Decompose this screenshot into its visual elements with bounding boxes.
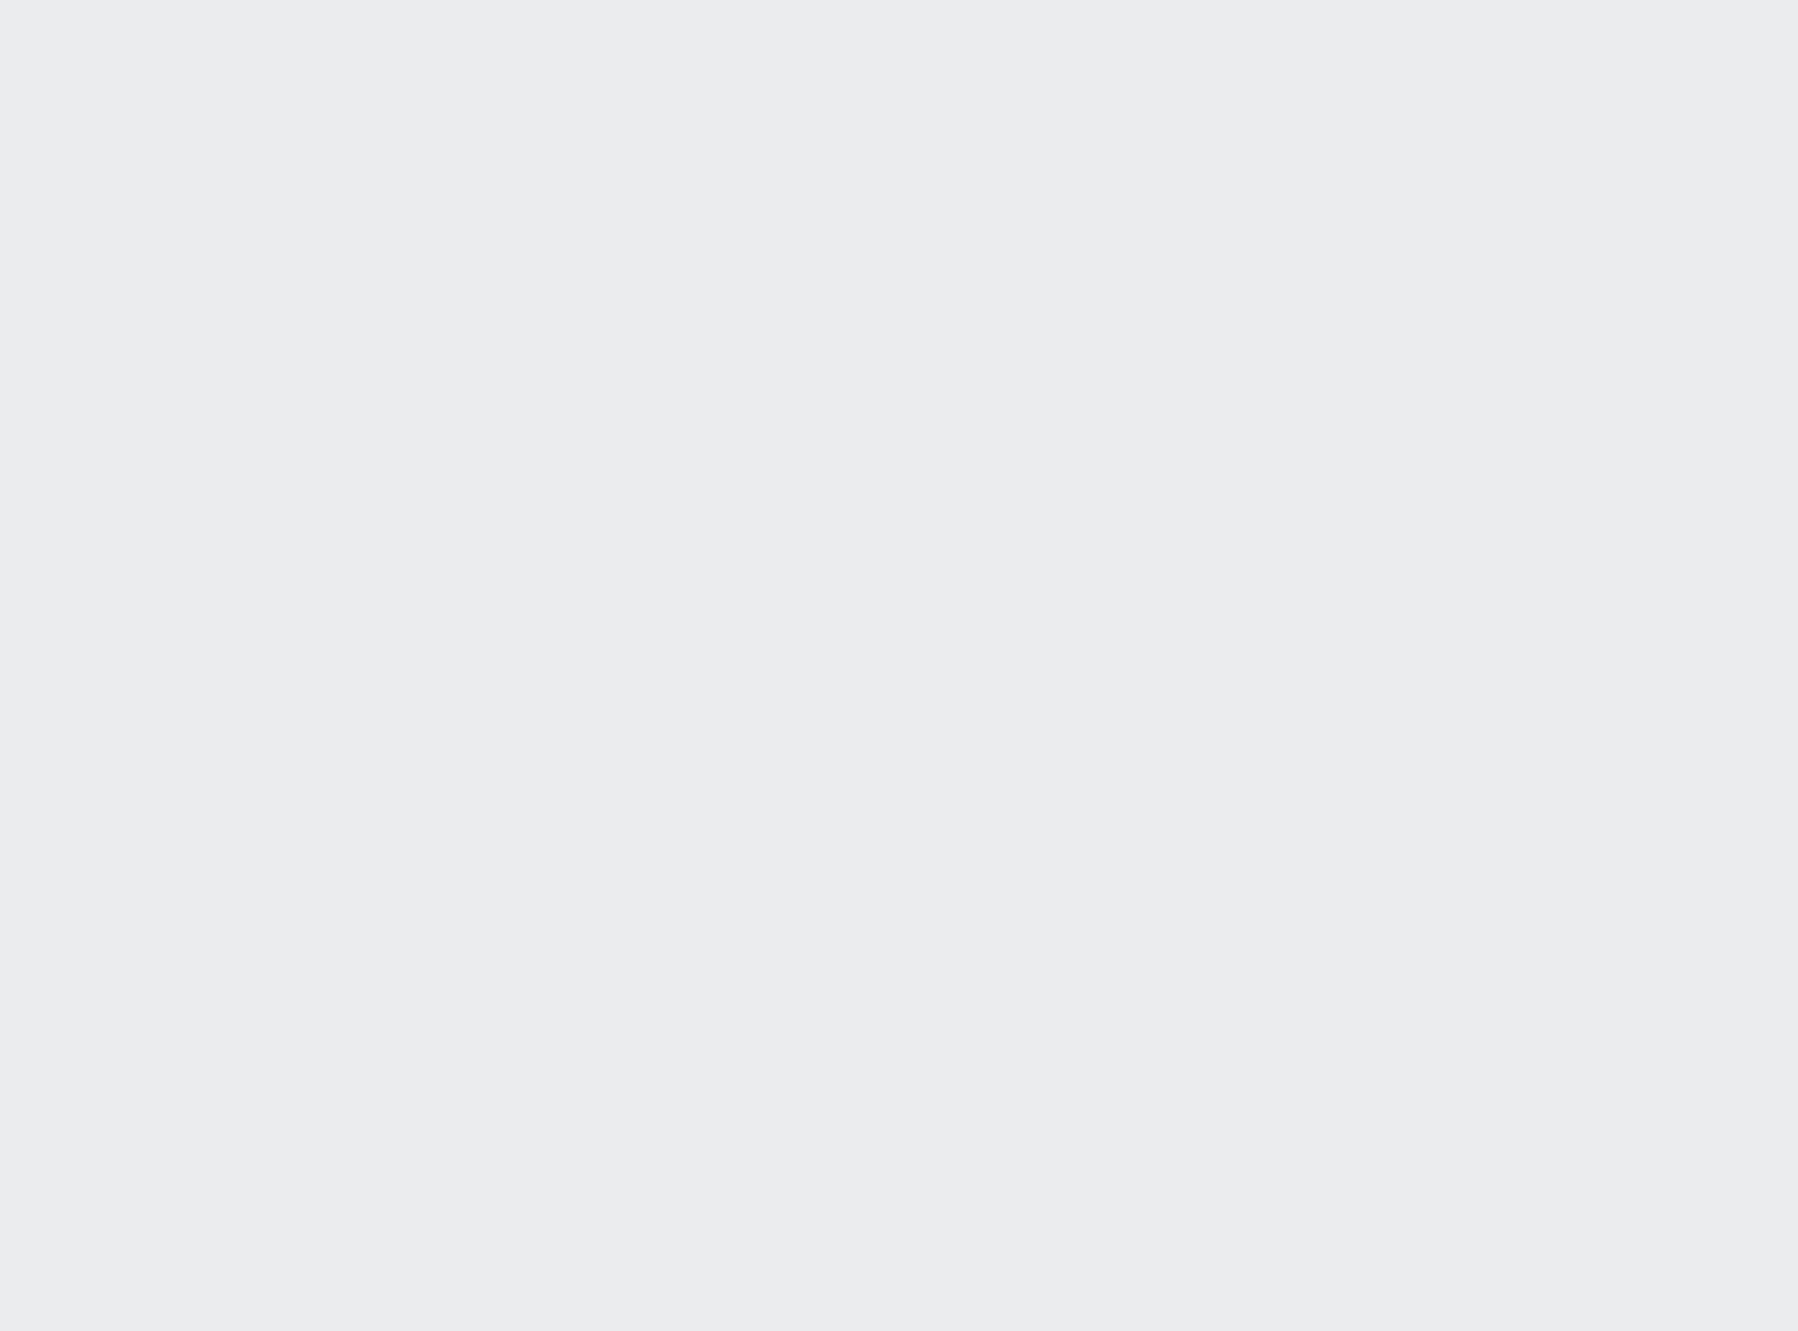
- floorplan-stage: [0, 0, 1798, 1331]
- isometric-apartment-render: [0, 0, 1798, 1331]
